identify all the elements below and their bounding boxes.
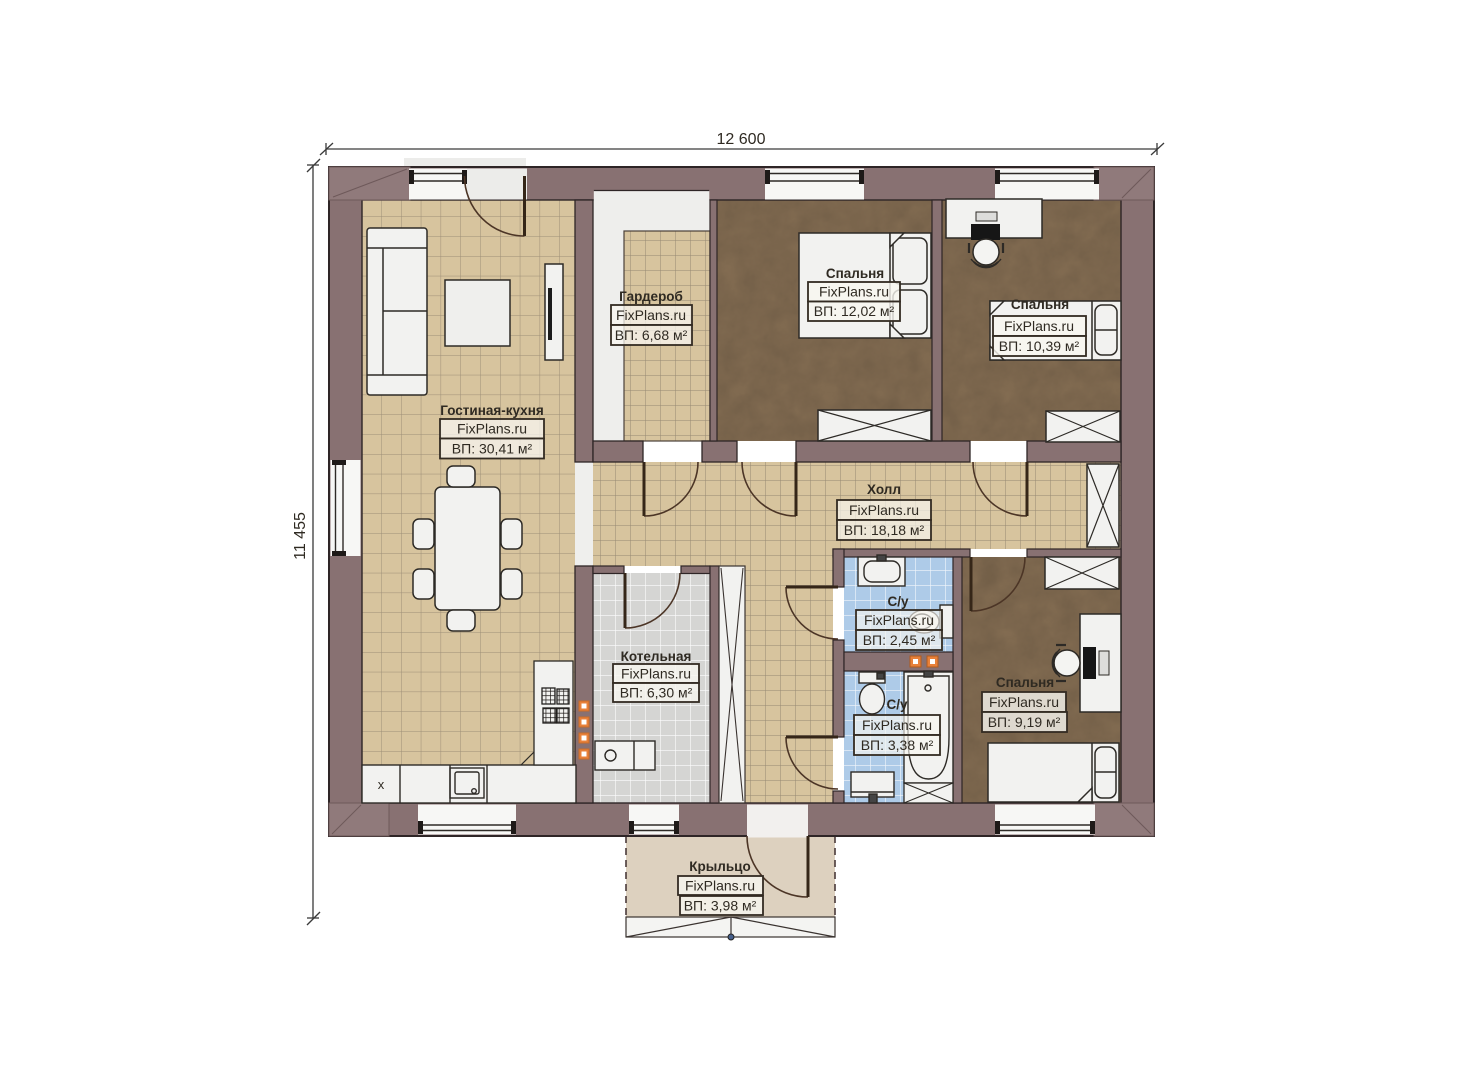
svg-text:FixPlans.ru: FixPlans.ru	[849, 502, 919, 518]
svg-text:FixPlans.ru: FixPlans.ru	[457, 421, 527, 437]
svg-text:Спальня: Спальня	[1011, 297, 1069, 312]
svg-text:Гардероб: Гардероб	[619, 289, 683, 304]
svg-text:Спальня: Спальня	[996, 675, 1054, 690]
svg-text:ВП: 3,98 м²: ВП: 3,98 м²	[684, 898, 757, 914]
svg-text:ВП: 2,45 м²: ВП: 2,45 м²	[863, 632, 936, 648]
svg-text:FixPlans.ru: FixPlans.ru	[862, 717, 932, 733]
svg-text:ВП: 6,68 м²: ВП: 6,68 м²	[615, 327, 688, 343]
svg-text:Спальня: Спальня	[826, 266, 884, 281]
svg-text:Котельная: Котельная	[621, 649, 692, 664]
svg-text:x: x	[378, 777, 385, 792]
svg-text:FixPlans.ru: FixPlans.ru	[621, 666, 691, 682]
svg-text:ВП: 6,30 м²: ВП: 6,30 м²	[620, 685, 693, 701]
svg-text:Холл: Холл	[867, 482, 901, 497]
svg-text:FixPlans.ru: FixPlans.ru	[819, 284, 889, 300]
svg-text:ВП: 12,02 м²: ВП: 12,02 м²	[814, 303, 895, 319]
svg-text:11 455: 11 455	[292, 512, 309, 560]
svg-text:FixPlans.ru: FixPlans.ru	[989, 694, 1059, 710]
svg-text:FixPlans.ru: FixPlans.ru	[685, 878, 755, 894]
svg-text:ВП: 18,18 м²: ВП: 18,18 м²	[844, 522, 925, 538]
svg-text:ВП: 9,19 м²: ВП: 9,19 м²	[988, 714, 1061, 730]
svg-text:12 600: 12 600	[717, 131, 766, 148]
svg-text:ВП: 3,38 м²: ВП: 3,38 м²	[861, 737, 934, 753]
svg-text:Гостиная-кухня: Гостиная-кухня	[440, 403, 543, 418]
svg-text:Крыльцо: Крыльцо	[689, 859, 750, 874]
svg-text:С/у: С/у	[886, 697, 908, 712]
svg-text:FixPlans.ru: FixPlans.ru	[1004, 318, 1074, 334]
svg-text:FixPlans.ru: FixPlans.ru	[864, 612, 934, 628]
svg-text:FixPlans.ru: FixPlans.ru	[616, 307, 686, 323]
svg-text:С/у: С/у	[887, 594, 909, 609]
svg-text:ВП: 30,41 м²: ВП: 30,41 м²	[452, 441, 533, 457]
svg-text:ВП: 10,39 м²: ВП: 10,39 м²	[999, 338, 1080, 354]
